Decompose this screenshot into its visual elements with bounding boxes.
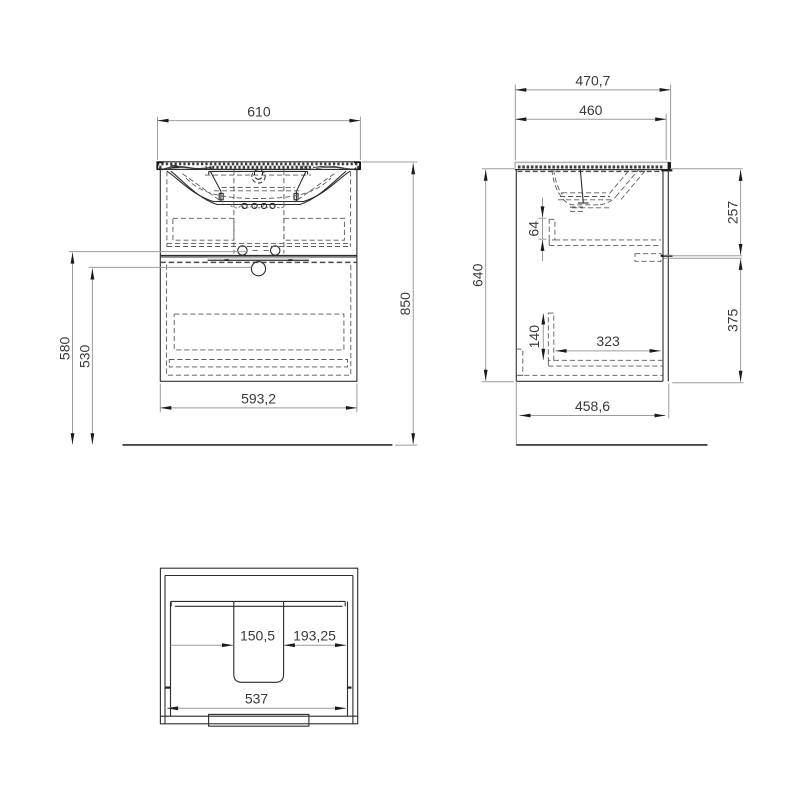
svg-text:193,25: 193,25	[293, 628, 336, 644]
svg-text:375: 375	[725, 308, 741, 332]
svg-text:64: 64	[525, 221, 541, 237]
svg-text:850: 850	[397, 292, 413, 316]
svg-text:470,7: 470,7	[575, 73, 610, 89]
svg-text:530: 530	[76, 344, 92, 368]
svg-text:580: 580	[57, 337, 73, 361]
svg-text:458,6: 458,6	[575, 398, 610, 414]
svg-text:257: 257	[725, 201, 741, 225]
svg-text:460: 460	[579, 102, 603, 118]
svg-text:140: 140	[526, 325, 542, 349]
svg-text:640: 640	[470, 263, 486, 287]
svg-text:610: 610	[247, 103, 271, 119]
svg-text:323: 323	[596, 333, 620, 349]
svg-text:593,2: 593,2	[241, 391, 276, 407]
svg-text:150,5: 150,5	[240, 628, 275, 644]
svg-text:537: 537	[245, 691, 269, 707]
